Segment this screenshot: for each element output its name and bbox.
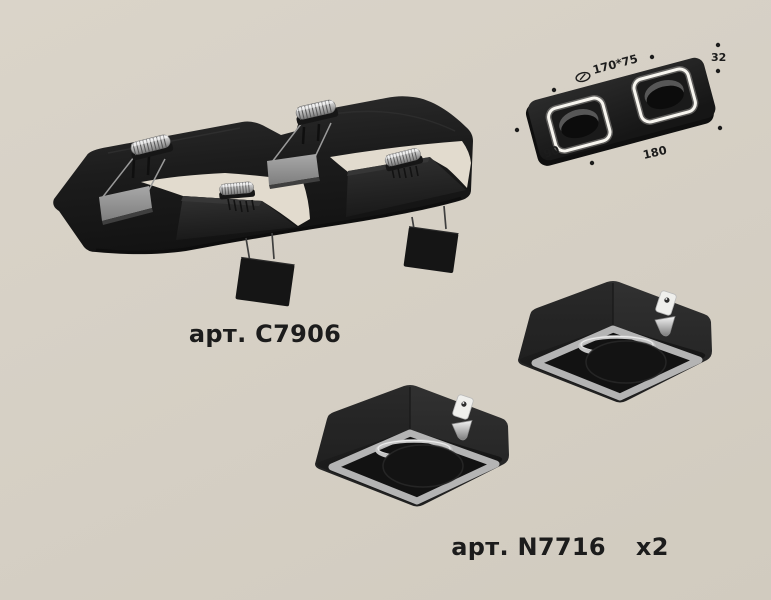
dimension-dot bbox=[716, 43, 720, 47]
quantity-text: x2 bbox=[636, 533, 669, 561]
spring-clip-icon bbox=[218, 181, 255, 199]
dimension-diagram: 170*75 32 90 180 bbox=[515, 43, 727, 168]
module-render-n7716-b bbox=[518, 281, 712, 403]
module-render-n7716-a bbox=[315, 385, 509, 507]
sku-label-c7906: арт. C7906 bbox=[130, 320, 400, 348]
dimension-label-length: 180 bbox=[642, 143, 669, 162]
dimension-dot bbox=[552, 88, 556, 92]
dimension-label-cutout: 170*75 bbox=[591, 51, 639, 76]
dimension-dot bbox=[590, 161, 594, 165]
plaster-tab-left bbox=[235, 257, 294, 306]
dimension-dot bbox=[515, 128, 519, 132]
product-collage-page: 170*75 32 90 180 арт. C7906 арт. N7716 x… bbox=[0, 0, 771, 600]
dimension-label-height: 32 bbox=[711, 51, 726, 64]
plaster-tab-right bbox=[403, 227, 458, 274]
ceiling-cutout-icon bbox=[575, 71, 591, 83]
dimension-dot bbox=[718, 126, 722, 130]
dimension-dot bbox=[716, 69, 720, 73]
sku-text-n7716: арт. N7716 bbox=[451, 533, 606, 561]
sku-label-n7716: арт. N7716 x2 bbox=[400, 533, 720, 561]
dimension-dot bbox=[650, 55, 654, 59]
fixture-render-c7906 bbox=[53, 96, 473, 306]
product-collage: 170*75 32 90 180 bbox=[0, 0, 771, 600]
